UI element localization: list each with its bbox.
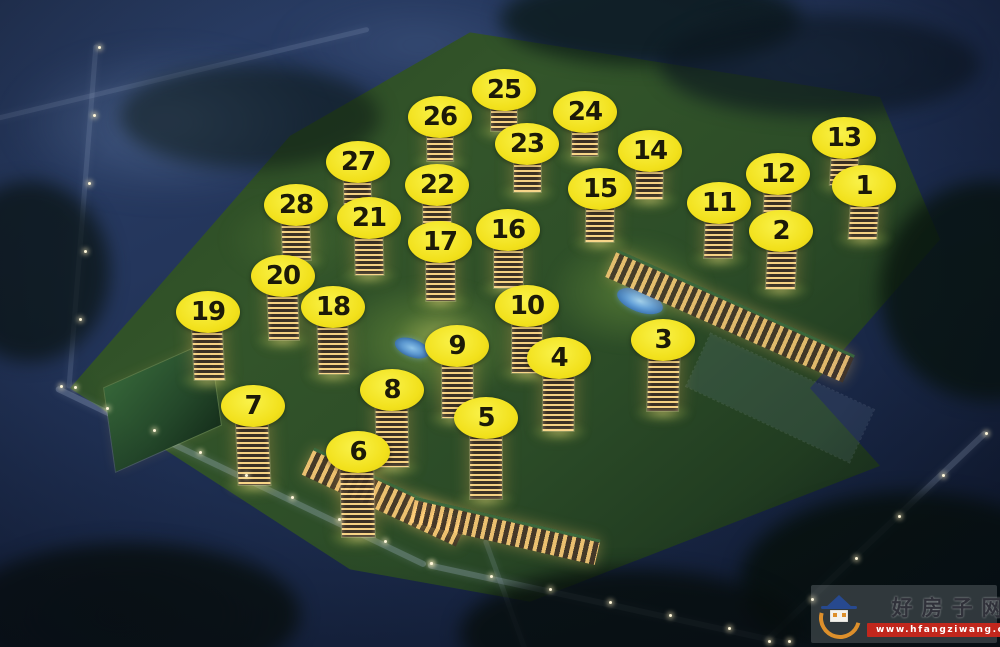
building-label-27: 27 <box>326 141 390 183</box>
building-number-labels: 1234567891011121314151617181920212223242… <box>0 0 1000 647</box>
street-light <box>291 496 294 499</box>
building-label-28: 28 <box>264 184 328 226</box>
street-light <box>60 385 63 388</box>
street-light <box>74 386 77 389</box>
house-icon <box>817 591 861 637</box>
watermark-url: www.hfangziwang.com <box>867 623 1000 637</box>
street-light <box>84 250 87 253</box>
building-label-9: 9 <box>425 325 489 367</box>
street-light <box>153 429 156 432</box>
building-label-2: 2 <box>749 210 813 252</box>
street-light <box>855 557 858 560</box>
street-light <box>98 46 101 49</box>
street-light <box>942 474 945 477</box>
building-label-7: 7 <box>221 385 285 427</box>
building-label-19: 19 <box>176 291 240 333</box>
street-light <box>788 640 791 643</box>
watermark-site-name: 好房子网 <box>888 592 1000 622</box>
roof-icon <box>825 595 853 608</box>
building-label-26: 26 <box>408 96 472 138</box>
watermark-hfangziwang: 好房子网 www.hfangziwang.com <box>811 585 997 643</box>
building-label-6: 6 <box>326 431 390 473</box>
street-light <box>669 614 672 617</box>
building-label-16: 16 <box>476 209 540 251</box>
building-label-4: 4 <box>527 337 591 379</box>
building-label-11: 11 <box>687 182 751 224</box>
street-light <box>490 575 493 578</box>
building-label-1: 1 <box>832 165 896 207</box>
building-label-25: 25 <box>472 69 536 111</box>
street-light <box>79 318 82 321</box>
street-light <box>384 540 387 543</box>
street-light <box>245 474 248 477</box>
building-label-21: 21 <box>337 197 401 239</box>
street-light <box>985 432 988 435</box>
building-label-14: 14 <box>618 130 682 172</box>
building-label-23: 23 <box>495 123 559 165</box>
building-label-12: 12 <box>746 153 810 195</box>
building-label-10: 10 <box>495 285 559 327</box>
building-label-24: 24 <box>553 91 617 133</box>
building-label-3: 3 <box>631 319 695 361</box>
building-label-18: 18 <box>301 286 365 328</box>
street-light <box>768 640 771 643</box>
street-light <box>338 518 341 521</box>
house-body-icon <box>830 610 848 622</box>
building-label-17: 17 <box>408 221 472 263</box>
aerial-night-rendering: 1234567891011121314151617181920212223242… <box>0 0 1000 647</box>
building-label-15: 15 <box>568 168 632 210</box>
building-label-22: 22 <box>405 164 469 206</box>
building-label-5: 5 <box>454 397 518 439</box>
building-label-13: 13 <box>812 117 876 159</box>
building-label-8: 8 <box>360 369 424 411</box>
street-light <box>430 562 433 565</box>
street-light <box>609 601 612 604</box>
building-label-20: 20 <box>251 255 315 297</box>
